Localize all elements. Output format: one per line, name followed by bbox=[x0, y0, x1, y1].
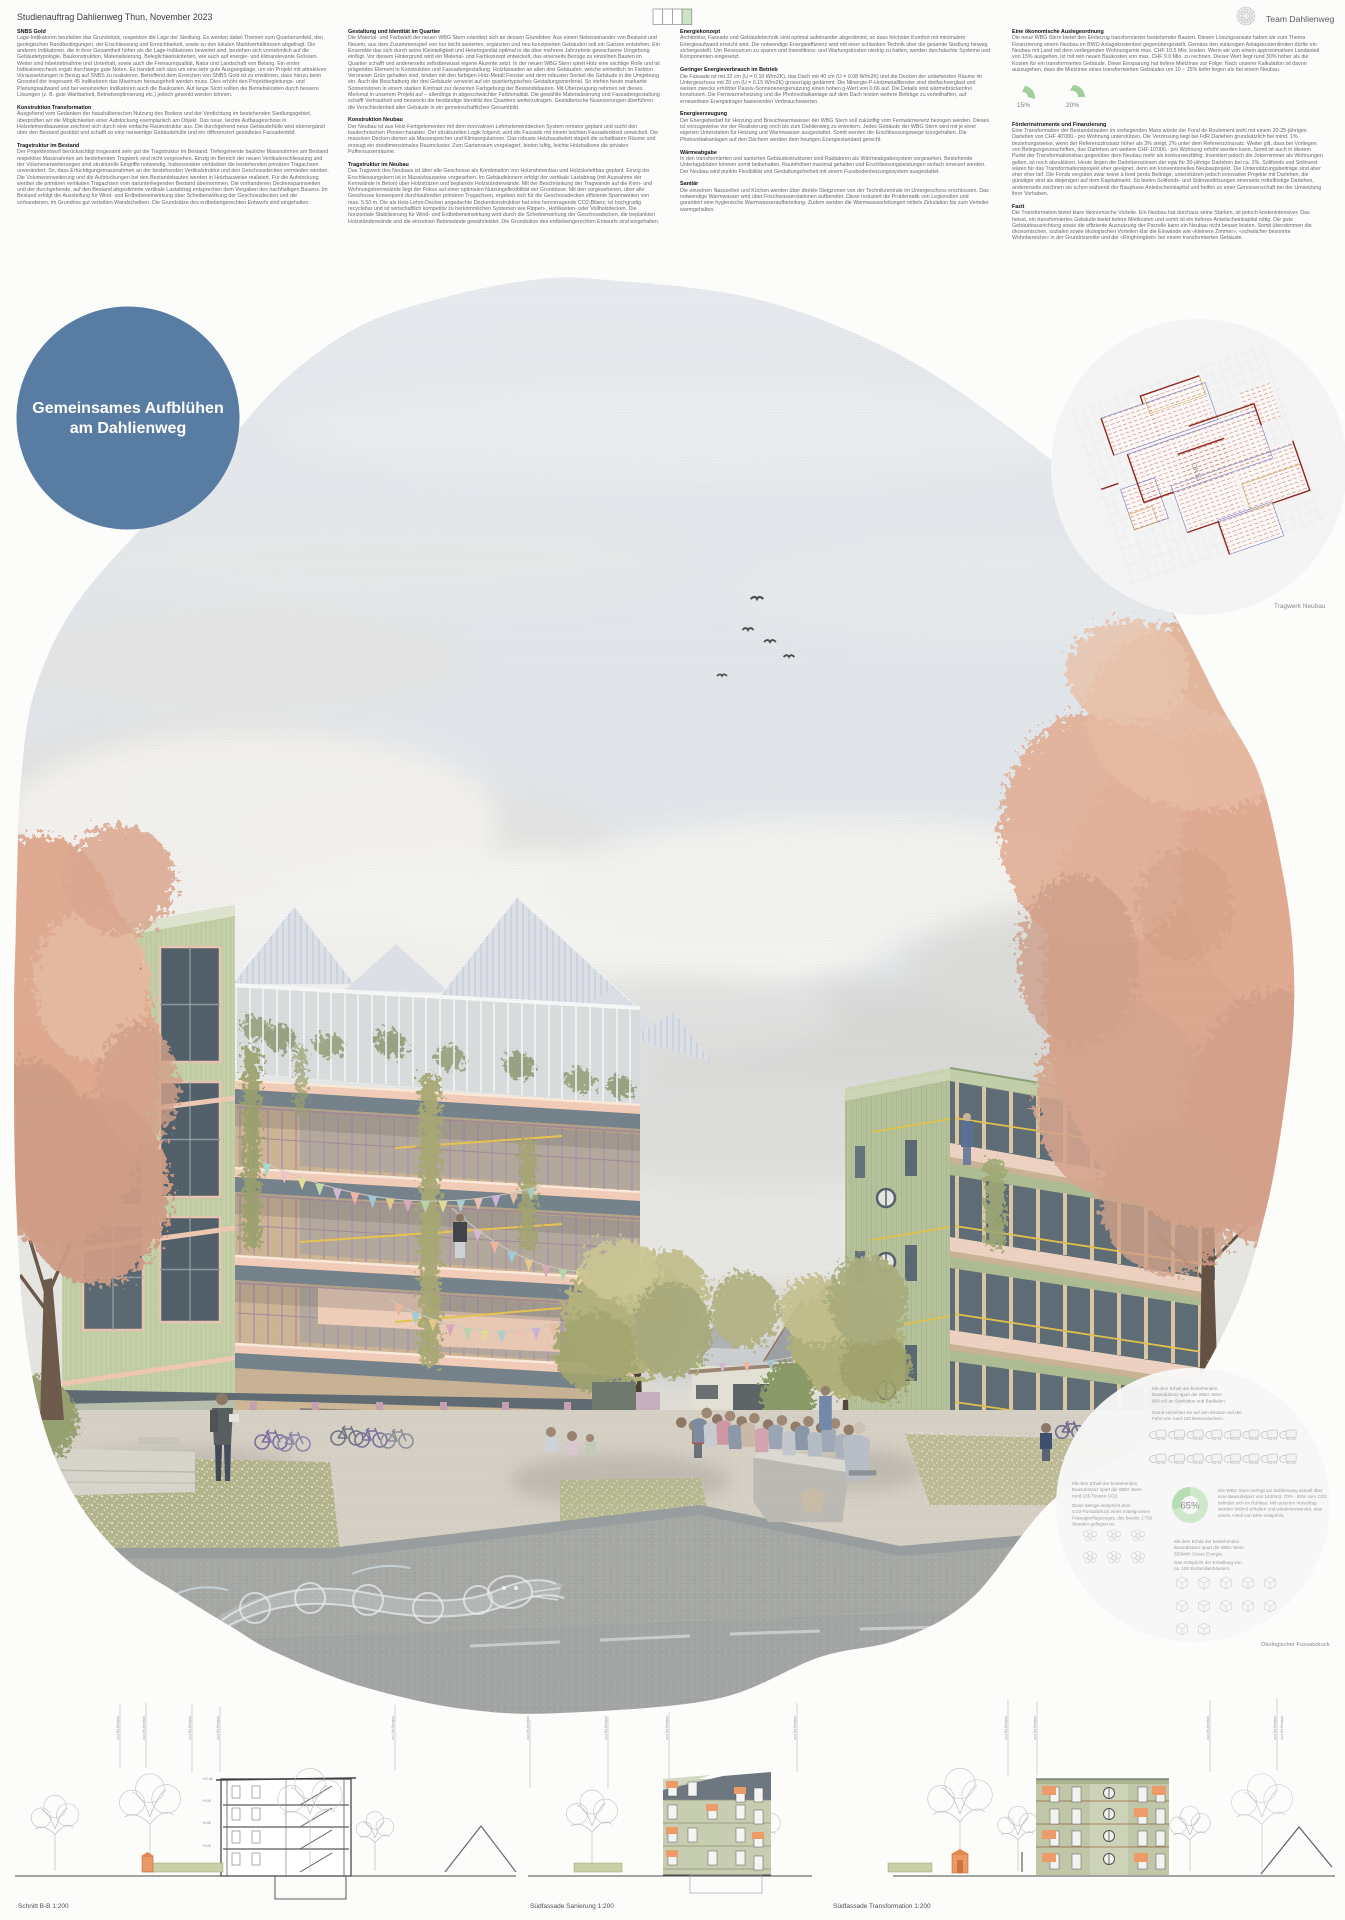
svg-text:CO2-Fussabdruck eines mittelgr: CO2-Fussabdruck eines mittelgrossen bbox=[1072, 1509, 1151, 1514]
svg-text:ca.4.5m Bestand: ca.4.5m Bestand bbox=[142, 1716, 146, 1740]
svg-text:Fahrt von rund 100 Betonmische: Fahrt von rund 100 Betonmischern. bbox=[1152, 1416, 1224, 1421]
svg-text:ca.4.5m Bestand: ca.4.5m Bestand bbox=[665, 1716, 669, 1740]
svg-text:+9.48: +9.48 bbox=[202, 1799, 211, 1803]
svg-text:ca.4.5m Bestand: ca.4.5m Bestand bbox=[1004, 1716, 1008, 1740]
svg-text:Schnitt B-B 1:200: Schnitt B-B 1:200 bbox=[18, 1903, 69, 1910]
svg-text:werden 900m3 erhalten und wied: werden 900m3 erhalten und wiederverwende… bbox=[1218, 1507, 1323, 1512]
svg-text:Ökologischer Fussabdruck: Ökologischer Fussabdruck bbox=[1261, 1641, 1330, 1648]
svg-text:+3.48: +3.48 bbox=[202, 1844, 211, 1848]
svg-text:Diese Menge entspricht dem: Diese Menge entspricht dem bbox=[1072, 1503, 1131, 1508]
svg-text:ca.4.5m Bestand: ca.4.5m Bestand bbox=[1273, 1716, 1277, 1740]
svg-text:Bausubstanz spart die WBG Ster: Bausubstanz spart die WBG Stern bbox=[1152, 1392, 1222, 1397]
svg-text:+6.48: +6.48 bbox=[202, 1821, 211, 1825]
svg-text:+12.48: +12.48 bbox=[202, 1777, 213, 1781]
svg-text:ca.4.5m Bestand: ca.4.5m Bestand bbox=[1033, 1716, 1037, 1740]
svg-text:ca.4.5m Bestand: ca.4.5m Bestand bbox=[1280, 1716, 1284, 1740]
svg-text:ca.4.5m Bestand: ca.4.5m Bestand bbox=[188, 1716, 192, 1740]
svg-text:Passagierflugzeuges, das berei: Passagierflugzeuges, das bereits 1’750 bbox=[1072, 1515, 1153, 1520]
svg-text:20%: 20% bbox=[1066, 102, 1079, 109]
svg-text:Damit verzichtet sie auf den E: Damit verzichtet sie auf den Einsatz und… bbox=[1152, 1410, 1242, 1415]
svg-text:ca.4.5m Bestand: ca.4.5m Bestand bbox=[116, 1716, 120, 1740]
svg-text:ca.4.5m Bestand: ca.4.5m Bestand bbox=[793, 1716, 797, 1740]
svg-text:eine Bausubstanz von 1400m3. 7: eine Bausubstanz von 1400m3. 70% - 80% v… bbox=[1218, 1494, 1327, 1499]
svg-text:ca.4.5m Bestand: ca.4.5m Bestand bbox=[1206, 1716, 1210, 1740]
svg-text:Bausubstanz spart die WBG Ster: Bausubstanz spart die WBG Stern bbox=[1174, 1545, 1244, 1550]
svg-text:befindet sich im Rohbau. Mit u: befindet sich im Rohbau. Mit unserem Vor… bbox=[1218, 1500, 1317, 1505]
svg-text:Tragwerk Neubau: Tragwerk Neubau bbox=[1274, 603, 1326, 610]
svg-text:Südfassade Transformation 1:20: Südfassade Transformation 1:200 bbox=[833, 1903, 931, 1910]
svg-text:Die WBG Stern verfügt am Dahli: Die WBG Stern verfügt am Dahlienweg aktu… bbox=[1218, 1488, 1323, 1493]
svg-text:Mit dem Erhalt der bestehenden: Mit dem Erhalt der bestehenden bbox=[1072, 1481, 1138, 1486]
svg-text:Mit dem Erhalt der bestehenden: Mit dem Erhalt der bestehenden bbox=[1152, 1386, 1218, 1391]
svg-text:rund 235 Tonnen CO2.: rund 235 Tonnen CO2. bbox=[1072, 1493, 1118, 1498]
svg-text:15%: 15% bbox=[1017, 102, 1030, 109]
svg-text:ca.4.5m Bestand: ca.4.5m Bestand bbox=[526, 1716, 530, 1740]
svg-text:einem Anteil von 65% entsprich: einem Anteil von 65% entspricht. bbox=[1218, 1513, 1285, 1518]
svg-text:Stunden geflogen ist.: Stunden geflogen ist. bbox=[1072, 1522, 1115, 1527]
svg-text:am Dahlienweg: am Dahlienweg bbox=[70, 420, 186, 437]
svg-text:555kWh Graue Energie.: 555kWh Graue Energie. bbox=[1174, 1551, 1223, 1556]
svg-text:65%: 65% bbox=[1180, 1501, 1200, 1512]
svg-text:ca.4.5m Bestand: ca.4.5m Bestand bbox=[604, 1716, 608, 1740]
svg-text:Mit dem Erhalt der bestehenden: Mit dem Erhalt der bestehenden bbox=[1174, 1539, 1240, 1544]
svg-text:Dahlienplätzli: Dahlienplätzli bbox=[16, 1647, 52, 1653]
svg-text:ca.4.5m Bestand: ca.4.5m Bestand bbox=[216, 1716, 220, 1740]
svg-text:Gemeinsames Aufblühen: Gemeinsames Aufblühen bbox=[32, 400, 223, 417]
svg-text:Bausubstanz spart die WBG Ster: Bausubstanz spart die WBG Stern bbox=[1072, 1487, 1142, 1492]
svg-text:Südfassade Sanierung 1:200: Südfassade Sanierung 1:200 bbox=[530, 1903, 614, 1910]
svg-text:Das entspricht der Erstellung: Das entspricht der Erstellung von bbox=[1174, 1560, 1242, 1565]
svg-text:ca. 100 Einfamilienhäusern.: ca. 100 Einfamilienhäusern. bbox=[1174, 1566, 1231, 1571]
svg-text:900 m3 an Sanitätion und Badka: 900 m3 an Sanitätion und Badkalen. bbox=[1152, 1398, 1226, 1403]
svg-text:ca.4.5m Bestand: ca.4.5m Bestand bbox=[391, 1716, 395, 1740]
